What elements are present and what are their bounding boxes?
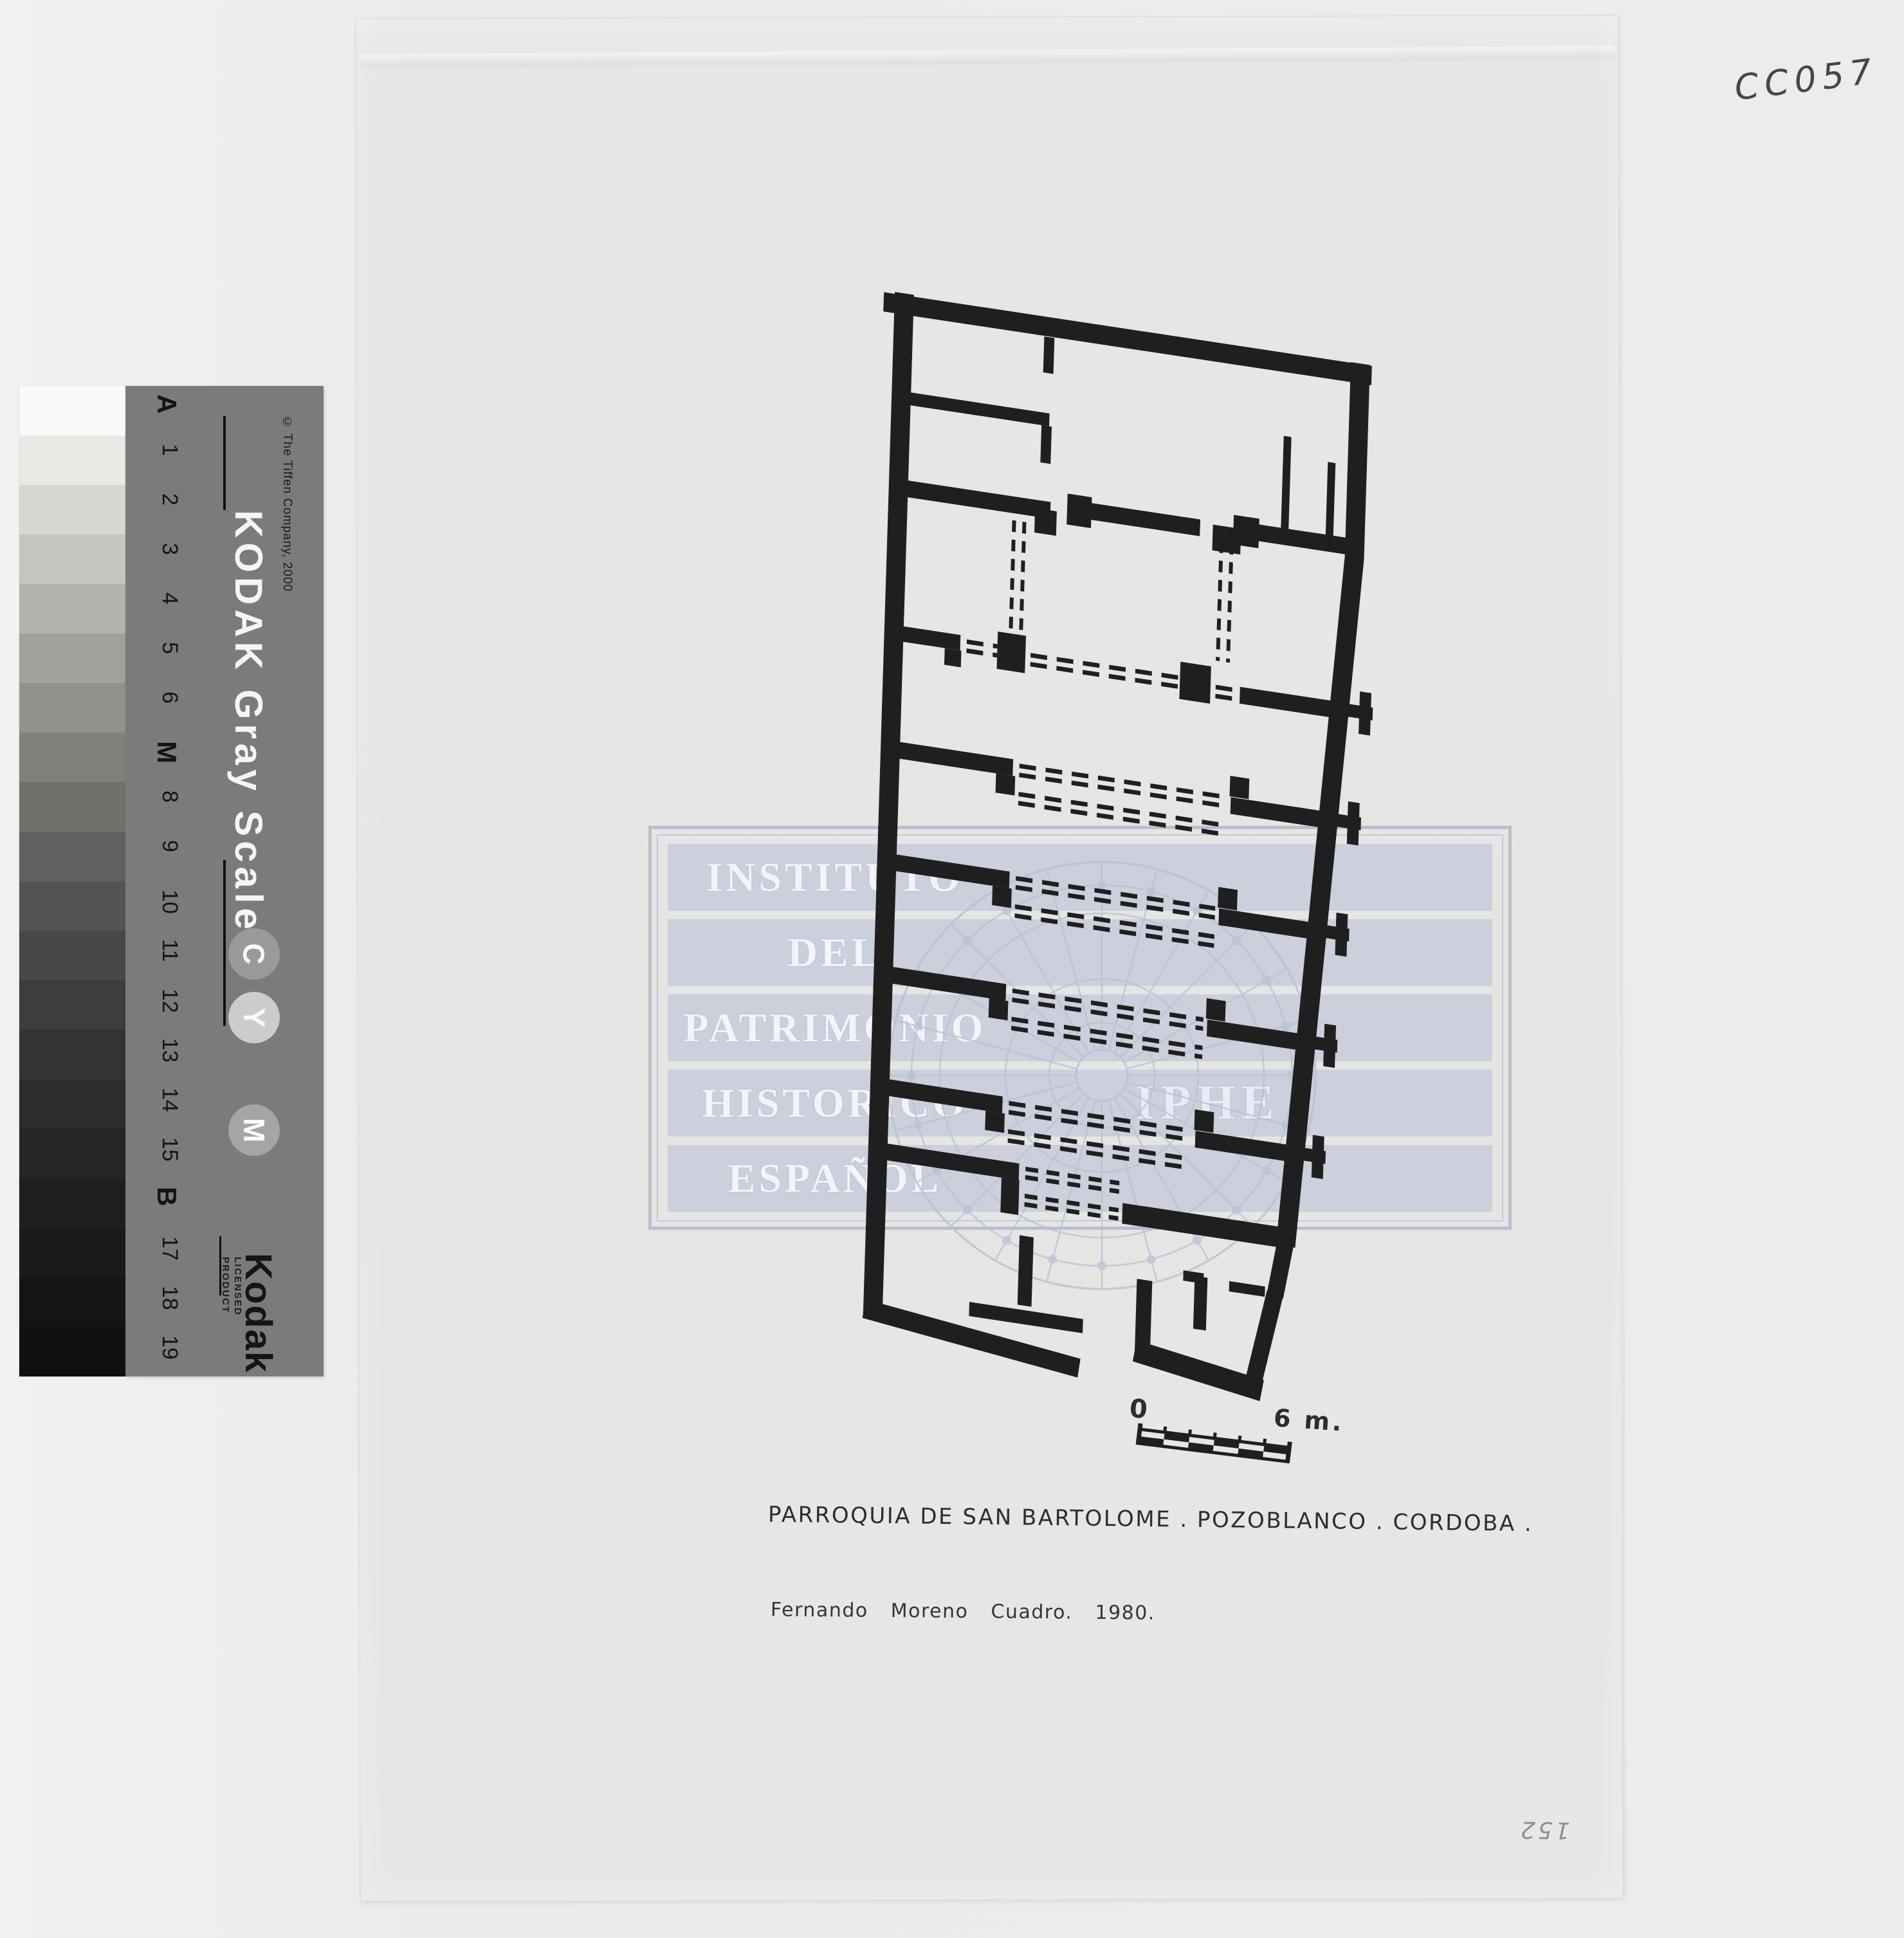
- rule-line: [223, 860, 226, 1026]
- plan-author-date: Fernando Moreno Cuadro. 1980.: [771, 1598, 1155, 1624]
- patch-label: 1: [154, 444, 182, 456]
- plan-top-wall: [884, 302, 1372, 376]
- ink-circle-C: C: [228, 928, 280, 980]
- gray-patch: [19, 1079, 125, 1129]
- scale-start-label: 0: [1128, 1394, 1148, 1425]
- patch-label: 9: [154, 840, 182, 852]
- gray-patch: [19, 485, 125, 535]
- patch-label: B: [154, 1187, 182, 1206]
- patch-label: 12: [154, 989, 182, 1013]
- patch-label: 11: [154, 939, 182, 962]
- gray-patch: [19, 931, 125, 980]
- patch-label: 14: [154, 1088, 182, 1112]
- gray-patch: [19, 1277, 125, 1327]
- gray-patch: [19, 634, 125, 683]
- patch-label: 5: [154, 642, 182, 654]
- gray-patch: [19, 1129, 125, 1178]
- gray-scale-title: KODAK Gray Scale: [221, 510, 276, 960]
- licensed-product-text: LICENSED PRODUCT: [219, 1257, 244, 1366]
- gray-patch: [19, 733, 125, 782]
- gray-patch: [19, 980, 125, 1030]
- scanned-archive-sheet: { "annotations": { "top_right_code": "CC…: [0, 0, 1904, 1938]
- patch-label: 19: [154, 1335, 182, 1360]
- ink-circle-Y: Y: [228, 992, 280, 1043]
- patch-label: 17: [154, 1236, 182, 1261]
- gray-patch: [19, 435, 125, 485]
- patch-label: M: [154, 741, 182, 763]
- patch-label: A: [154, 394, 182, 414]
- gray-patch: [19, 782, 125, 832]
- copyright-text: © The Tiffen Company, 2000: [279, 416, 296, 737]
- gray-patch: [19, 683, 125, 733]
- gray-patch: [19, 535, 125, 584]
- gray-patch-column: [19, 386, 125, 1376]
- rule-line: [223, 416, 226, 510]
- patch-label: 13: [154, 1038, 182, 1063]
- patch-label: 4: [154, 592, 182, 605]
- gray-patch: [19, 584, 125, 634]
- gray-patch: [19, 1030, 125, 1079]
- kodak-gray-scale-strip: A123456M89101112131415B171819 KODAK Gray…: [19, 386, 324, 1376]
- patch-label: 18: [154, 1286, 182, 1310]
- gray-scale-panel: A123456M89101112131415B171819 KODAK Gray…: [125, 386, 324, 1376]
- patch-label: 8: [154, 791, 182, 803]
- gray-patch: [19, 386, 125, 435]
- graphic-scale-bar: [1138, 1423, 1290, 1463]
- gray-patch: [19, 1327, 125, 1376]
- patch-label: 2: [154, 493, 182, 506]
- scale-end-label: 6 m.: [1273, 1403, 1346, 1437]
- page-number: 152: [1518, 1816, 1570, 1843]
- patch-label: 10: [154, 890, 182, 914]
- patch-label: 15: [154, 1137, 182, 1162]
- gray-patch: [19, 1228, 125, 1277]
- gray-patch: [19, 881, 125, 931]
- gray-patch: [19, 832, 125, 881]
- ink-circle-M: M: [228, 1104, 280, 1156]
- patch-label: 3: [154, 543, 182, 555]
- plan-left-wall: [873, 293, 904, 1319]
- patch-label: 6: [154, 691, 182, 704]
- gray-patch: [19, 1178, 125, 1228]
